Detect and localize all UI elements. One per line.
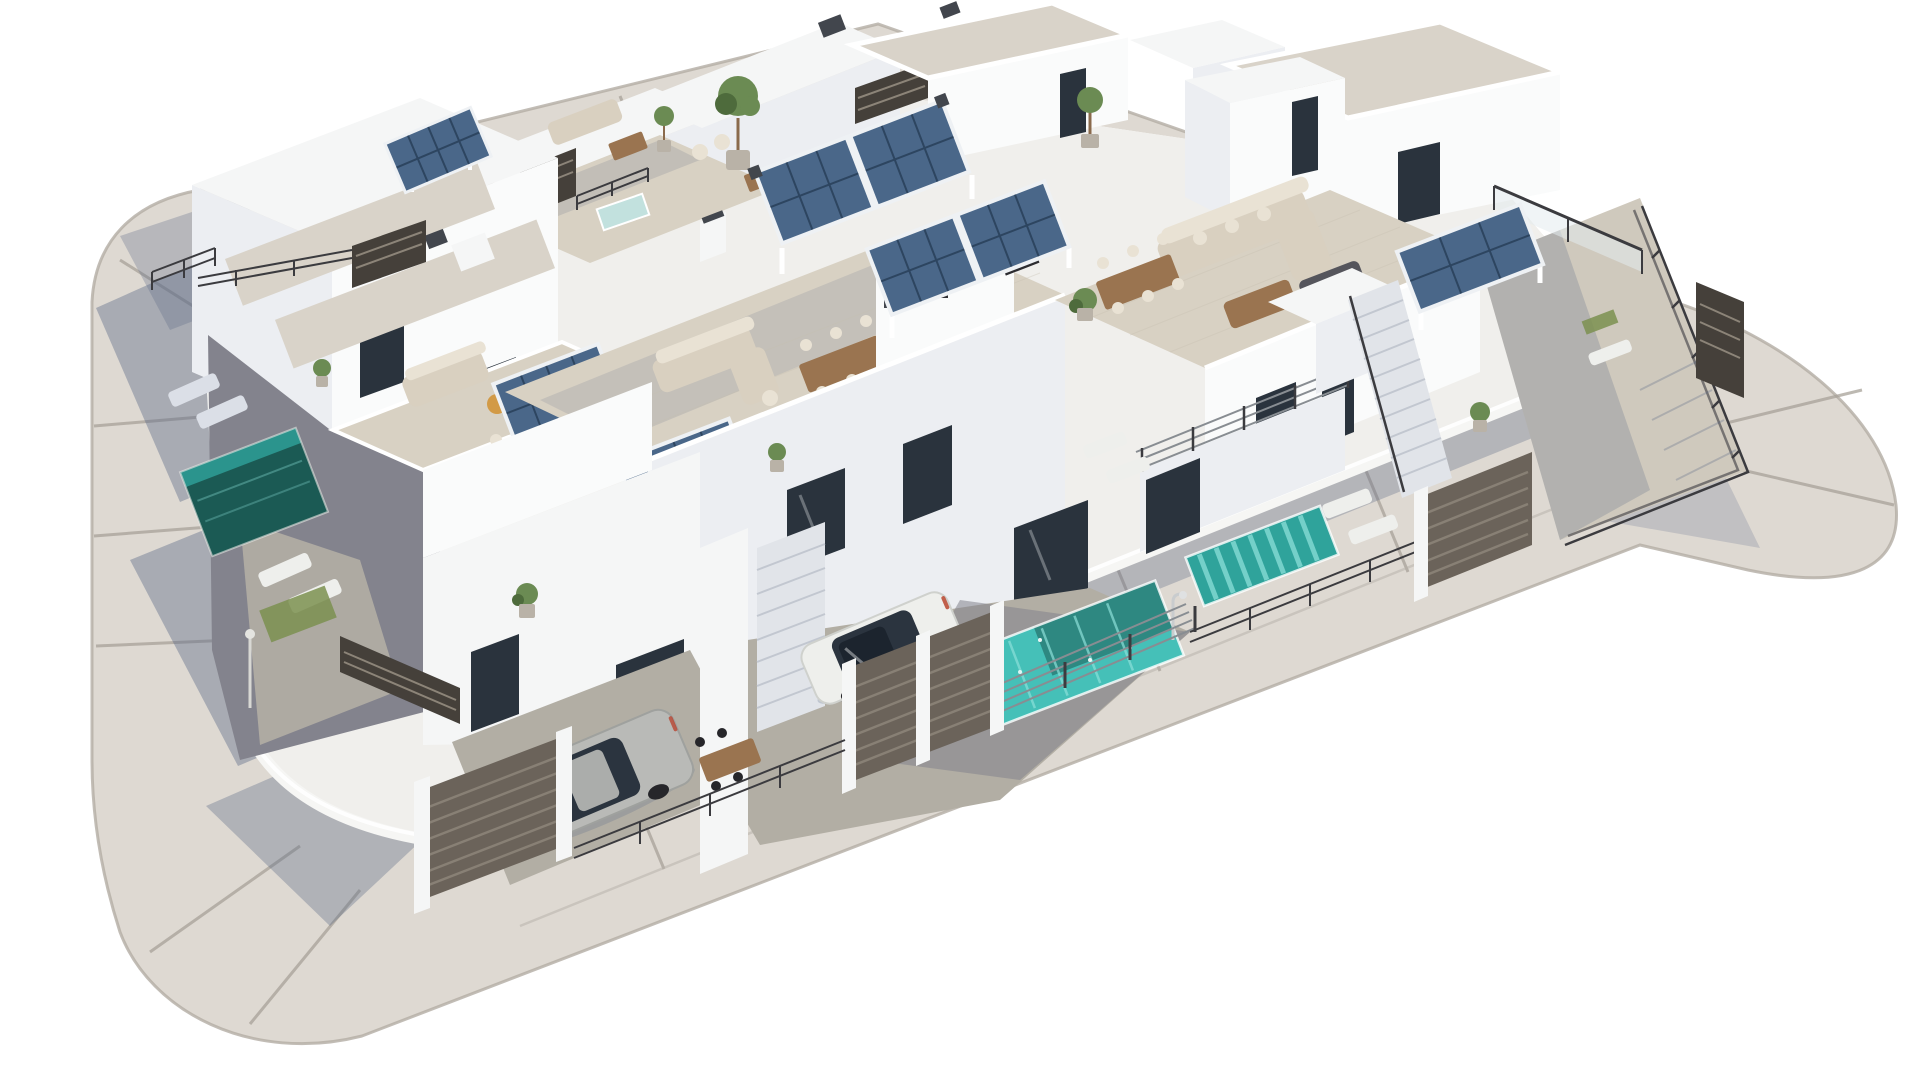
cushion: [1257, 207, 1271, 221]
gate-pillar: [916, 630, 930, 766]
chair: [830, 327, 842, 339]
villa-development-render: [0, 0, 1920, 1080]
rooftop-ac-unit: [939, 1, 960, 19]
dividing-wall: [700, 528, 748, 874]
gate-pillar: [1414, 486, 1428, 602]
architectural-render-page: [0, 0, 1920, 1080]
door: [1292, 96, 1318, 176]
wicker-chair: [714, 134, 730, 150]
wicker-chair: [692, 144, 708, 160]
fence-panel-right-corner: [1696, 282, 1744, 398]
gate-pillar: [842, 658, 856, 794]
staircase-patio: [757, 522, 825, 732]
chair: [1142, 290, 1154, 302]
potted-plant: [1470, 402, 1490, 432]
chair: [1172, 278, 1184, 290]
potted-plant: [768, 443, 786, 472]
cushion: [1225, 219, 1239, 233]
gate-pillar: [414, 776, 430, 914]
chair: [1127, 245, 1139, 257]
chair: [800, 339, 812, 351]
chair: [717, 728, 727, 738]
door: [1398, 142, 1440, 224]
cushion: [1193, 231, 1207, 245]
gate-pillar: [990, 600, 1004, 736]
plant-pot: [657, 140, 671, 152]
shower-head: [245, 629, 255, 639]
chair: [860, 315, 872, 327]
chair: [1112, 302, 1124, 314]
plant-pot: [726, 150, 750, 170]
pouf: [762, 390, 778, 406]
chair: [695, 737, 705, 747]
chair: [1157, 233, 1169, 245]
gate-pillar: [556, 726, 572, 862]
chair: [1097, 257, 1109, 269]
